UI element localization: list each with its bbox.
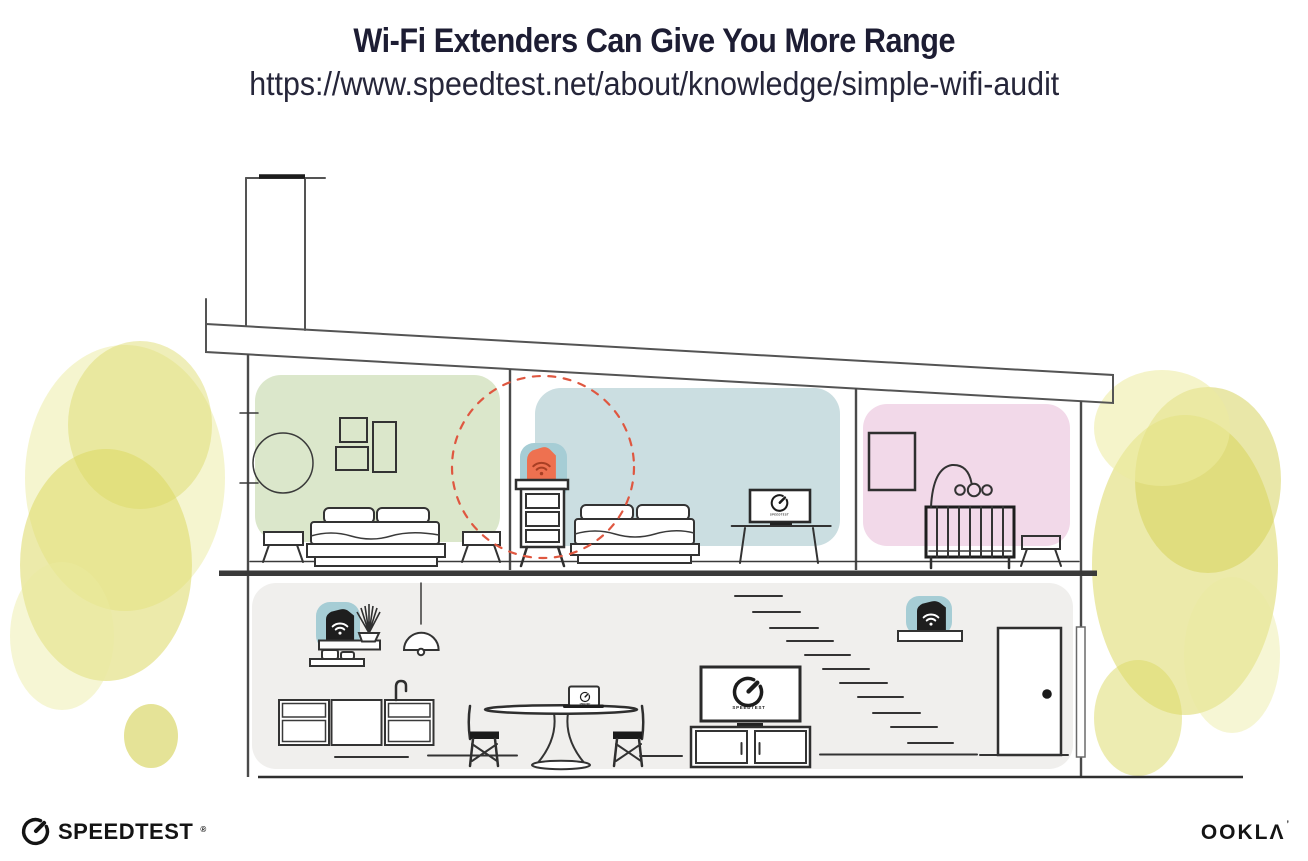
wifi-router xyxy=(326,609,354,640)
dresser xyxy=(516,480,568,566)
nightstand xyxy=(263,532,303,562)
wall-shelf xyxy=(310,659,364,666)
foliage-blob xyxy=(1184,577,1280,733)
wall-shelf xyxy=(898,631,962,641)
wifi-extender-infographic: Wi-Fi Extenders Can Give You More Range … xyxy=(0,0,1308,861)
door-knob xyxy=(1042,689,1052,699)
trade-mark: ’ xyxy=(1286,819,1289,829)
living-room-tv: SPEEDTEST xyxy=(691,667,810,767)
nightstand xyxy=(462,532,500,562)
tv-console xyxy=(691,727,810,767)
foliage-right xyxy=(1092,370,1281,776)
bedroom-extender-on-dresser xyxy=(516,443,568,566)
ookla-wordmark: OOKLΛ xyxy=(1201,821,1286,844)
registered-mark: ® xyxy=(200,825,206,834)
tv-screen-label: SPEEDTEST xyxy=(770,513,789,517)
speedtest-gauge-icon xyxy=(20,816,51,847)
bed xyxy=(307,508,445,566)
laptop: SPEEDTEST xyxy=(563,687,604,709)
speedtest-logo: SPEEDTEST® xyxy=(20,816,206,847)
foliage-blob xyxy=(10,562,114,710)
roof xyxy=(206,177,1113,404)
foliage-left xyxy=(10,341,225,768)
foliage-blob xyxy=(68,341,212,509)
cup xyxy=(341,652,354,659)
wifi-extender xyxy=(917,601,946,632)
tv-screen-label: SPEEDTEST xyxy=(732,705,765,710)
foliage-blob xyxy=(1094,370,1230,486)
room-nursery xyxy=(863,404,1070,546)
house-illustration: SPEEDTEST xyxy=(0,0,1308,861)
speedtest-wordmark: SPEEDTEST xyxy=(58,819,193,845)
foliage-blob xyxy=(124,704,178,768)
foliage-blob xyxy=(1094,660,1182,776)
floor-slab xyxy=(219,571,1097,577)
downspout xyxy=(1077,627,1086,757)
ookla-logo: OOKLΛ’ xyxy=(1201,821,1288,845)
cup xyxy=(322,650,338,659)
